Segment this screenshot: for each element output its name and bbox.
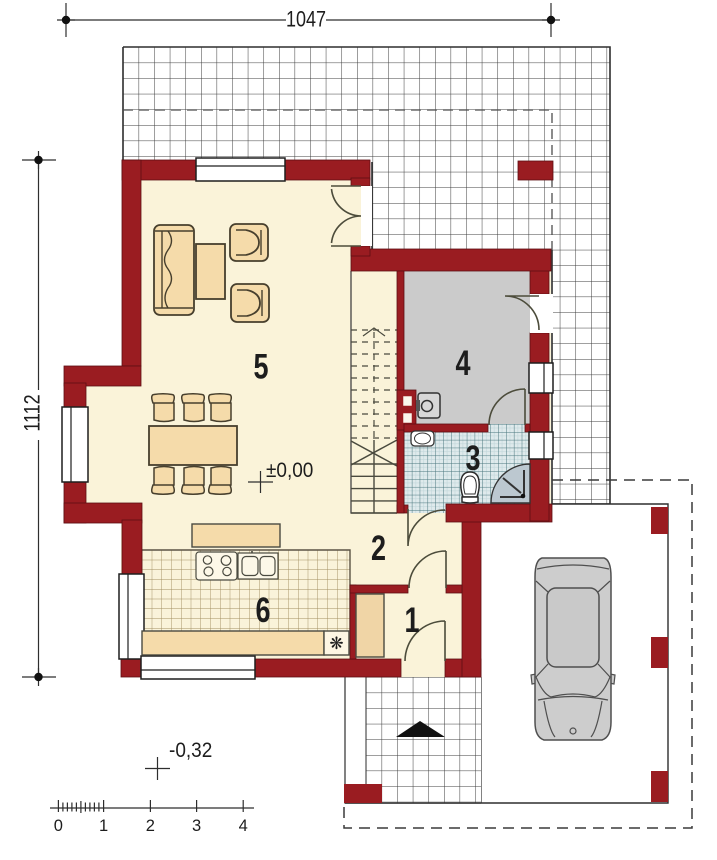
svg-text:6: 6	[255, 589, 270, 630]
svg-text:1: 1	[404, 599, 419, 640]
svg-text:4: 4	[455, 342, 470, 383]
svg-text:1047: 1047	[286, 8, 326, 32]
svg-text:❋: ❋	[329, 634, 343, 653]
svg-text:±0,00: ±0,00	[266, 459, 313, 482]
svg-text:4: 4	[239, 817, 248, 835]
svg-text:1112: 1112	[21, 394, 45, 431]
svg-text:0: 0	[54, 817, 63, 835]
svg-text:5: 5	[253, 346, 268, 387]
svg-text:2: 2	[371, 527, 386, 568]
svg-text:3: 3	[465, 437, 480, 478]
svg-text:2: 2	[146, 817, 155, 835]
svg-text:-0,32: -0,32	[169, 739, 212, 762]
svg-text:3: 3	[192, 817, 201, 835]
svg-text:1: 1	[99, 817, 108, 835]
